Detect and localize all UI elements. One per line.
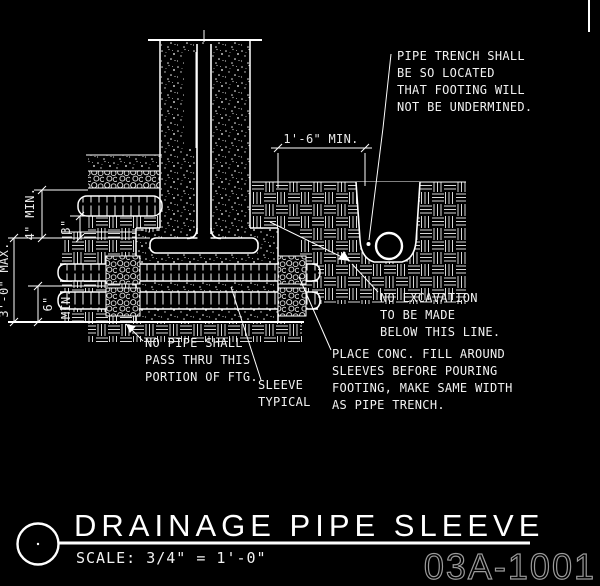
left-slab-stack [78,155,162,216]
note-line: TYPICAL [258,395,311,409]
note-line: PORTION OF FTG. [145,370,258,384]
sheet-number: 03A-1001 [424,546,596,586]
note-line: PASS THRU THIS [145,353,250,367]
note-line: PLACE CONC. FILL AROUND [332,347,505,361]
note-line: BE SO LOCATED [397,66,495,80]
detail-bubble-dot [37,543,39,545]
note-line: FOOTING, MAKE SAME WIDTH [332,381,513,395]
dim-label-trench-width: 1'-6" MIN. [283,132,358,146]
note-line: SLEEVES BEFORE POURING [332,364,498,378]
detail-title: DRAINAGE PIPE SLEEVE [74,508,544,543]
pipe-trench [356,182,420,262]
title-block: DRAINAGE PIPE SLEEVE SCALE: 3/4" = 1'-0"… [18,508,597,586]
note-line: AS PIPE TRENCH. [332,398,445,412]
cad-sheet: 1'-6" MIN. 3" 4" MIN. 3'-0" MAX. 6" MIN.… [0,0,600,586]
note-line: NOT BE UNDERMINED. [397,100,532,114]
dim-label-3ft-max: 3'-0" MAX. [0,242,11,317]
dim-label-4in: 4" MIN. [23,188,37,241]
note-line: BELOW THIS LINE. [380,325,500,339]
dim-label-6in: 6" [41,296,55,311]
note-line: SLEEVE [258,378,303,392]
left-pipe [78,196,162,216]
dim-trench-width: 1'-6" MIN. [271,132,372,188]
note-line: NO PIPE SHALL [145,336,243,350]
note-line: TO BE MADE [380,308,455,322]
drain-pipe-section [376,233,402,259]
dim-label-3in: 3" [59,219,73,234]
note-line: NO EXCAVATION [380,291,478,305]
detail-scale: SCALE: 3/4" = 1'-0" [76,549,267,567]
note-line: PIPE TRENCH SHALL [397,49,525,63]
dim-label-6in-min: MIN. [59,289,73,319]
detail-drawing: 1'-6" MIN. 3" 4" MIN. 3'-0" MAX. 6" MIN.… [0,0,600,586]
note-line: THAT FOOTING WILL [397,83,525,97]
